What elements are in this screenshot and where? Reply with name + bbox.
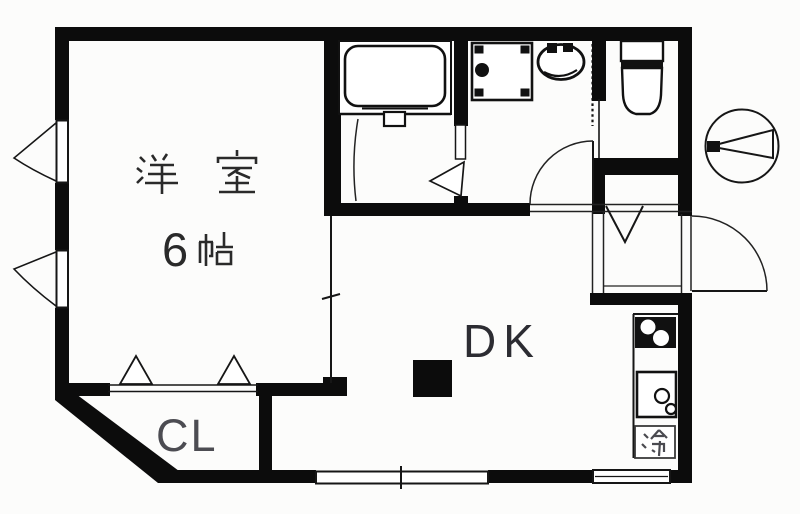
svg-text:CL: CL — [156, 410, 218, 461]
svg-text:6: 6 — [162, 223, 188, 276]
svg-text:DK: DK — [463, 315, 541, 367]
